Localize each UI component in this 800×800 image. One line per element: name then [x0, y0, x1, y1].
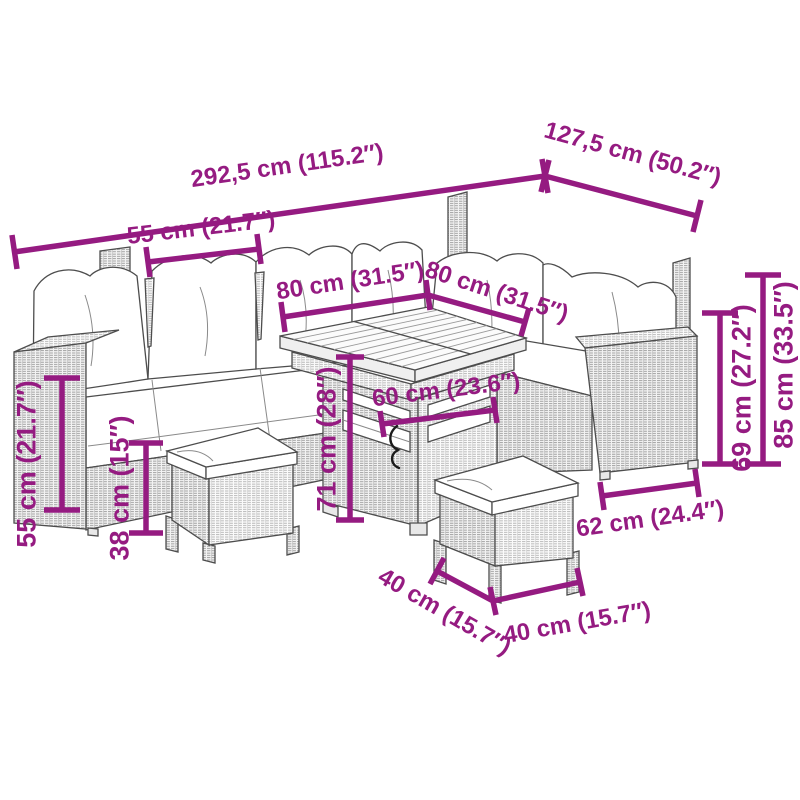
dimension-backrest-height: 69 cm (27.2″) — [702, 304, 756, 472]
dimension-table-height-label: 71 cm (28″) — [311, 366, 341, 511]
dimension-total-depth: 127,5 cm (50.2″) — [541, 117, 724, 232]
dimension-total-width-label: 292,5 cm (115.2″) — [189, 139, 385, 193]
product-dimension-diagram: 292,5 cm (115.2″) 127,5 cm (50.2″) 55 cm… — [0, 0, 800, 800]
dimension-drawing-canvas: 292,5 cm (115.2″) 127,5 cm (50.2″) 55 cm… — [0, 0, 800, 800]
back-pillow-2 — [148, 254, 256, 379]
dimension-stool-width-label: 40 cm (15.7″) — [501, 597, 652, 649]
dimension-total-height-label: 85 cm (33.5″) — [768, 281, 798, 449]
armrest-right — [585, 336, 697, 473]
dimension-seat-height-label: 38 cm (15″) — [104, 415, 134, 560]
dimension-armrest-depth-label: 62 cm (24.4″) — [575, 495, 726, 542]
dimension-seat-width-label: 55 cm (21.7″) — [126, 206, 277, 250]
dimension-backrest-height-label: 69 cm (27.2″) — [726, 304, 756, 472]
dimension-armrest-depth: 62 cm (24.4″) — [575, 469, 726, 543]
dimension-armrest-height-label: 55 cm (21.7″) — [11, 380, 41, 548]
stool-left — [166, 428, 299, 563]
